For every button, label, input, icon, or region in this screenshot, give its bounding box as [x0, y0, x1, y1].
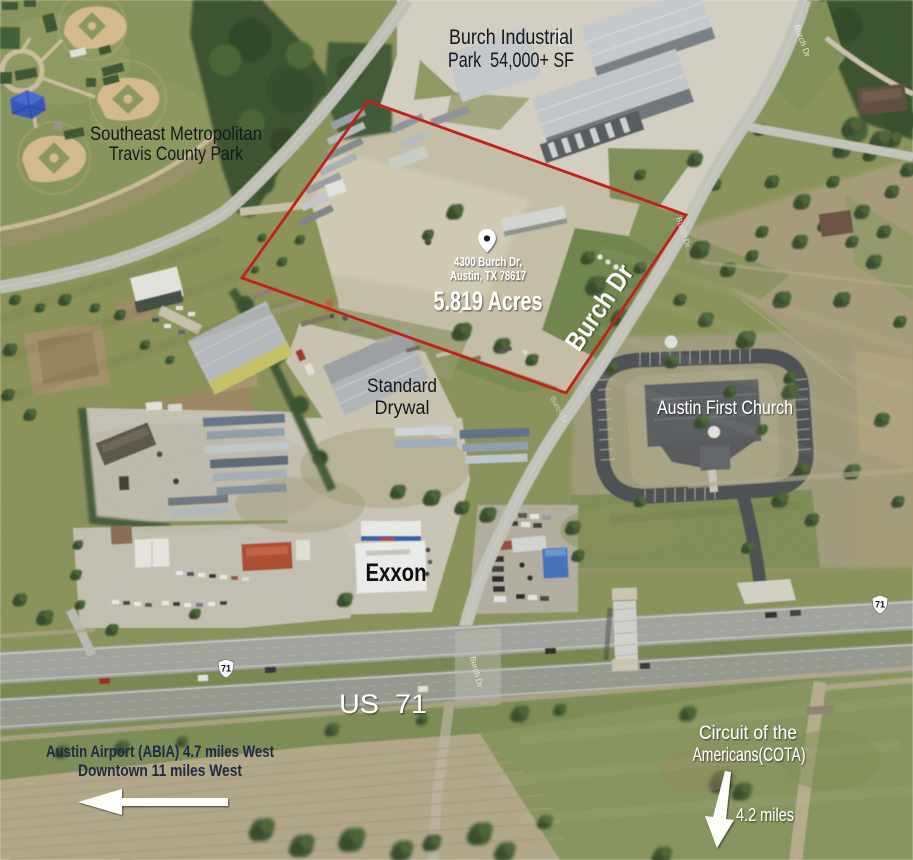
svg-text:4.2 miles: 4.2 miles — [736, 804, 794, 825]
svg-text:Park 54,000+ SF: Park 54,000+ SF — [448, 49, 574, 72]
svg-text:Circuit of the: Circuit of the — [699, 723, 797, 744]
svg-text:Burch Industrial: Burch Industrial — [449, 26, 573, 49]
svg-text:Exxon: Exxon — [366, 559, 427, 587]
svg-text:Standard: Standard — [367, 376, 437, 397]
svg-text:71: 71 — [875, 600, 885, 610]
svg-text:Americans(COTA): Americans(COTA) — [693, 745, 806, 766]
svg-text:Downtown 11 miles West: Downtown 11 miles West — [78, 761, 242, 780]
svg-text:5.819 Acres: 5.819 Acres — [434, 286, 543, 316]
svg-text:Austin, TX 78617: Austin, TX 78617 — [450, 269, 526, 283]
svg-text:US 71: US 71 — [339, 689, 427, 719]
svg-text:Austin First Church: Austin First Church — [657, 397, 793, 419]
svg-text:4300 Burch Dr,: 4300 Burch Dr, — [454, 255, 522, 269]
svg-text:Travis County Park: Travis County Park — [109, 144, 243, 165]
svg-text:Drywal: Drywal — [375, 398, 430, 419]
svg-text:Southeast Metropolitan: Southeast Metropolitan — [90, 124, 262, 145]
svg-text:71: 71 — [221, 664, 231, 674]
svg-text:Austin Airport (ABIA) 4.7 mile: Austin Airport (ABIA) 4.7 miles West — [46, 742, 274, 761]
